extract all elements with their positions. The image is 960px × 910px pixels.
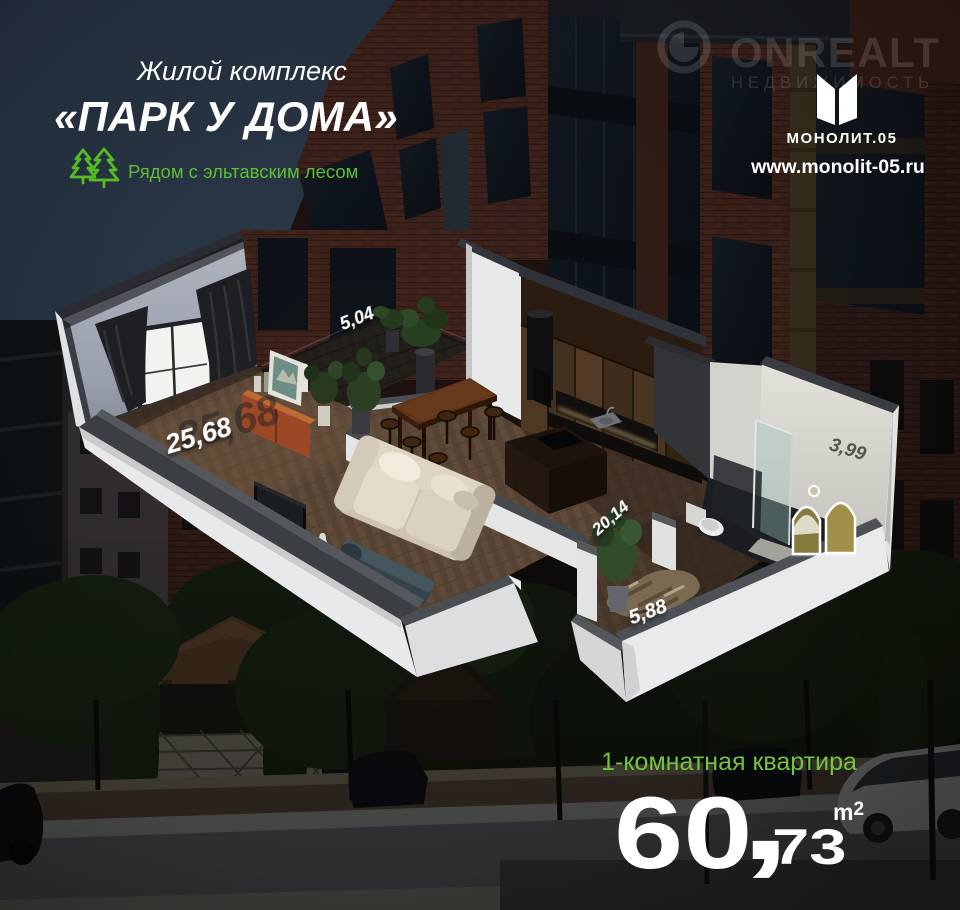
svg-text:«ПАРК У ДОМА»: «ПАРК У ДОМА»	[54, 93, 398, 140]
svg-text:ONREALT: ONREALT	[730, 29, 940, 76]
svg-text:www.monolit-05.ru: www.monolit-05.ru	[750, 156, 925, 178]
svg-text:1-комнатная квартира: 1-комнатная квартира	[601, 748, 857, 776]
svg-text:Рядом с эльтавским лесом: Рядом с эльтавским лесом	[128, 161, 358, 182]
svg-text:73: 73	[772, 818, 847, 875]
svg-text:МОНОЛИТ.05: МОНОЛИТ.05	[787, 130, 898, 147]
svg-text:Жилой комплекс: Жилой комплекс	[135, 56, 347, 86]
svg-text:60: 60	[614, 777, 752, 891]
